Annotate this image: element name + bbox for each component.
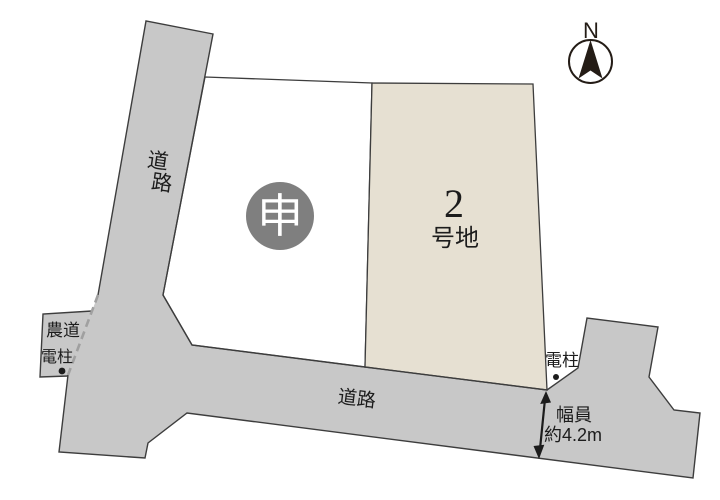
site-plan-canvas: 申 2 号地 道 路 道路 農道 電柱 電柱 幅員 約4.2m N xyxy=(0,0,720,500)
lot-2-number: 2 xyxy=(444,181,464,226)
road-bottom-label: 道路 xyxy=(337,386,377,412)
pole-label-right: 電柱 xyxy=(545,351,579,370)
road-left-label-char-bottom: 路 xyxy=(150,170,174,197)
farm-road-label: 農道 xyxy=(46,321,80,340)
lot-2-suffix: 号地 xyxy=(431,225,479,252)
site-plan: 申 2 号地 道 路 道路 農道 電柱 電柱 幅員 約4.2m N xyxy=(0,0,720,500)
application-badge-label: 申 xyxy=(257,191,303,242)
width-label: 幅員 xyxy=(556,405,592,425)
north-compass: N xyxy=(569,18,612,83)
pole-dot-right xyxy=(553,374,559,380)
pole-dot-left xyxy=(59,368,66,375)
width-value: 約4.2m xyxy=(544,425,602,445)
pole-label-left: 電柱 xyxy=(41,348,73,366)
